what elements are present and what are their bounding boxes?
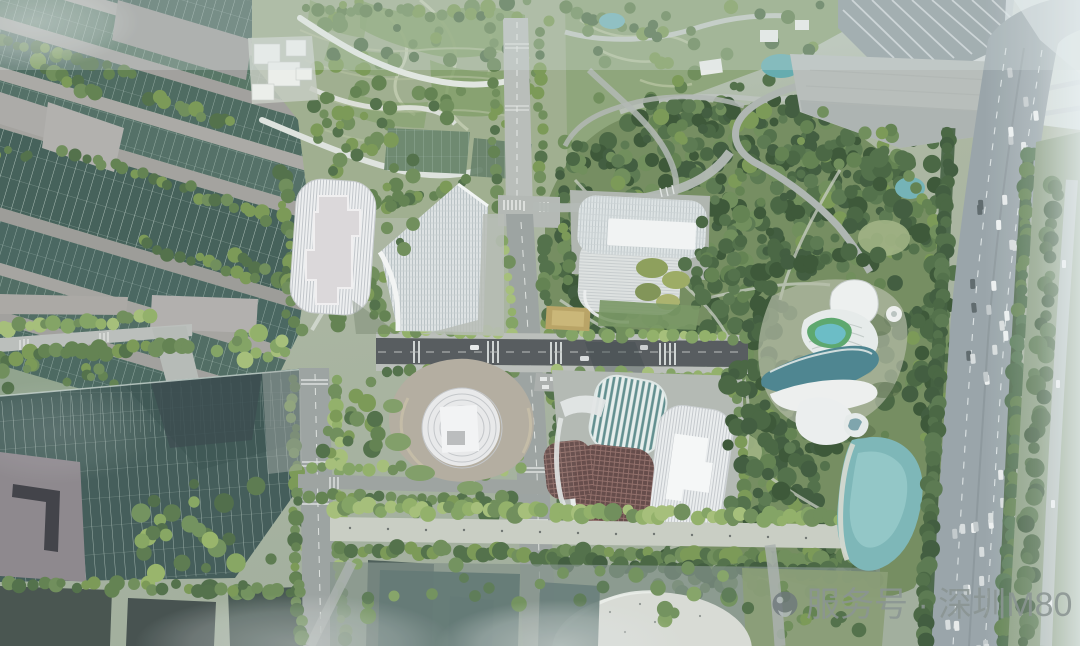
- svg-text:服务号 · 深圳M80: 服务号 · 深圳M80: [806, 586, 1072, 624]
